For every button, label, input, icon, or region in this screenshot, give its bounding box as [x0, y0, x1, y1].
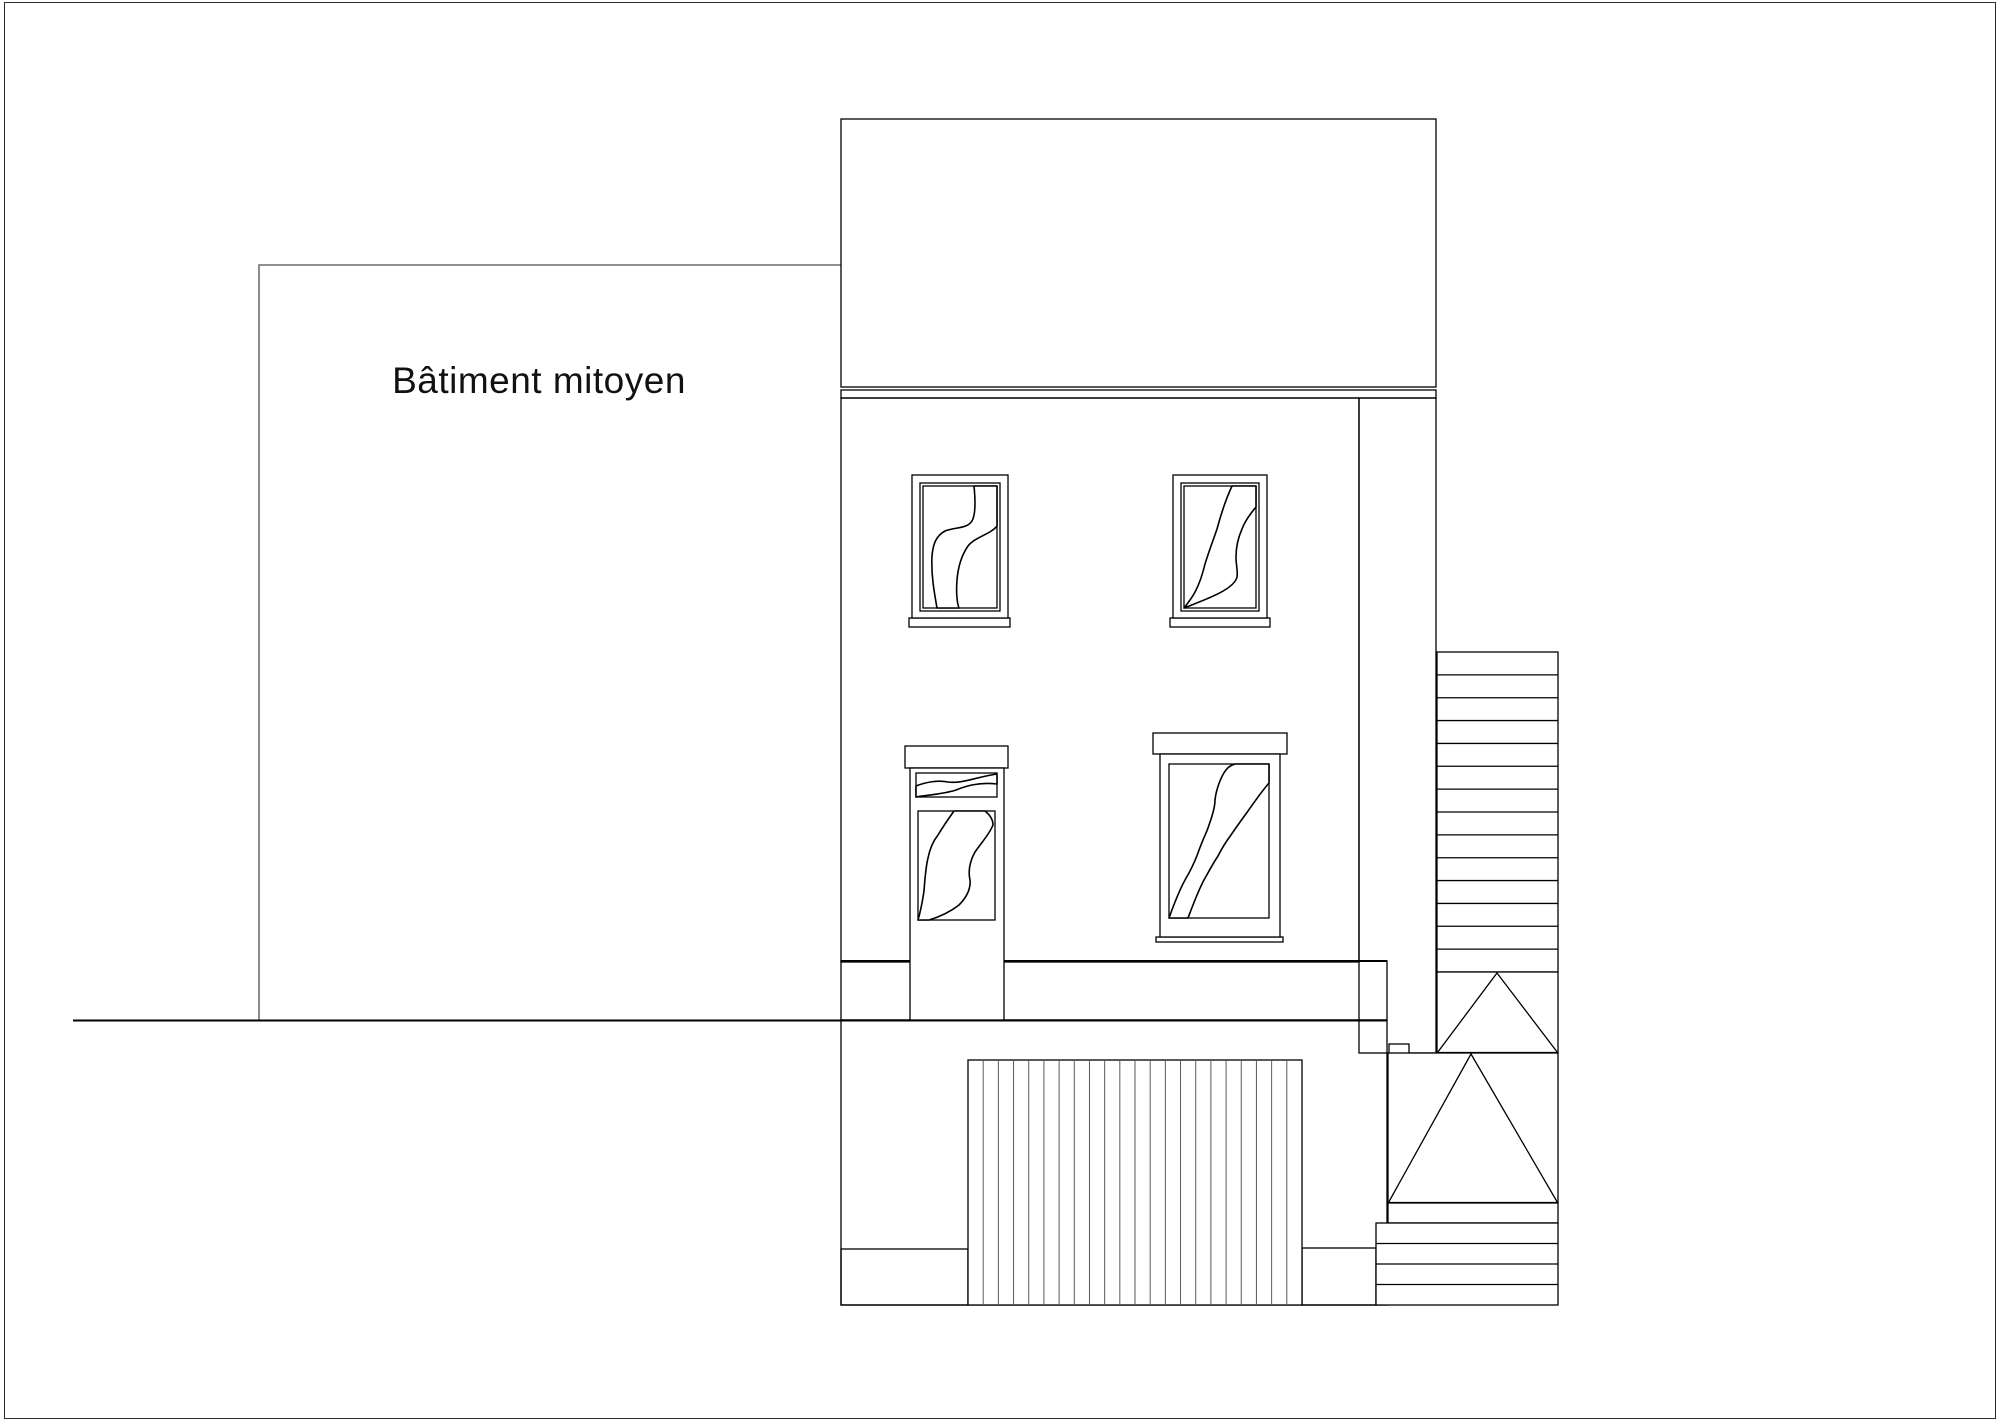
base-stone-patch-right: [1302, 1248, 1376, 1305]
window-sill: [909, 618, 1010, 627]
stairs-upper-flight: [1437, 652, 1558, 972]
cornice-band: [841, 390, 1436, 398]
garage-door-slats: [983, 1061, 1287, 1304]
window-upper-left: [909, 475, 1010, 627]
window-sill: [1170, 618, 1270, 627]
entrance-door: [905, 746, 1008, 1020]
stairs-gable-small: [1437, 972, 1558, 1053]
garage-door: [968, 1060, 1302, 1305]
window-sill: [1156, 937, 1283, 942]
adjoining-building-label: Bâtiment mitoyen: [392, 360, 686, 402]
facade-elevation-svg: [0, 0, 2001, 1424]
door-header: [905, 746, 1008, 768]
window-large: [1153, 733, 1287, 942]
elevation-drawing-page: Bâtiment mitoyen: [0, 0, 2001, 1424]
window-header: [1153, 733, 1287, 754]
base-stone-patch-left: [841, 1249, 968, 1305]
window-upper-right: [1170, 475, 1270, 627]
stairs-lower-steps: [1376, 1203, 1558, 1305]
roof-hatched: [841, 119, 1436, 387]
stone-quoin-column: [1359, 398, 1436, 1053]
stairs-gable-large: [1388, 1053, 1558, 1203]
